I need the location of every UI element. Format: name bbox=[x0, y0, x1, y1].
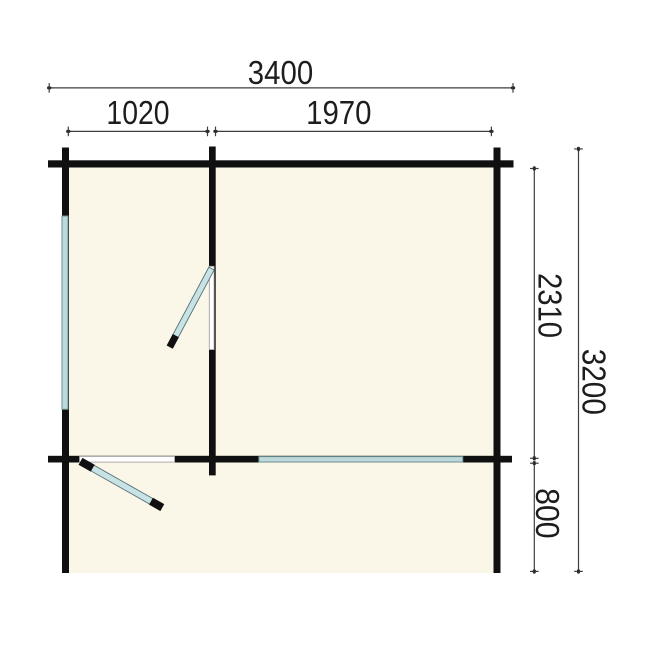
svg-text:3200: 3200 bbox=[576, 349, 613, 415]
svg-text:3400: 3400 bbox=[248, 54, 313, 91]
svg-text:1020: 1020 bbox=[106, 94, 169, 131]
svg-text:2310: 2310 bbox=[532, 273, 569, 338]
svg-text:1970: 1970 bbox=[306, 94, 371, 131]
svg-text:800: 800 bbox=[529, 488, 566, 539]
